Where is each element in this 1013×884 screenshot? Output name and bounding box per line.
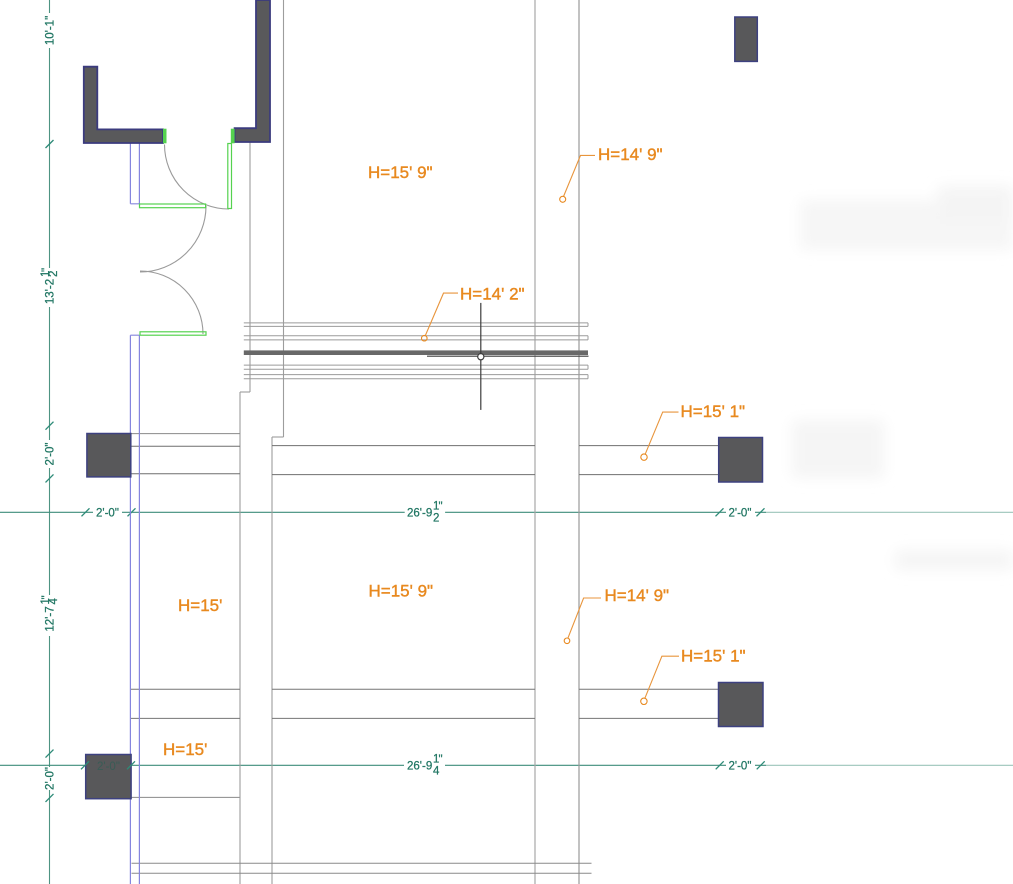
svg-text:": " <box>439 501 443 513</box>
svg-text:4: 4 <box>433 766 440 778</box>
svg-text:2'-0": 2'-0" <box>45 767 57 790</box>
svg-text:2'-0": 2'-0" <box>729 508 752 520</box>
svg-text:2'-0": 2'-0" <box>45 443 57 466</box>
svg-text:13'-2: 13'-2 <box>45 279 57 304</box>
svg-text:": " <box>439 754 443 766</box>
svg-text:2'-0": 2'-0" <box>97 761 120 773</box>
svg-text:H=15' 1": H=15' 1" <box>681 646 746 665</box>
svg-text:2'-0": 2'-0" <box>96 508 119 520</box>
svg-text:2'-0": 2'-0" <box>729 761 752 773</box>
svg-text:": " <box>41 595 53 599</box>
svg-text:10'-1": 10'-1" <box>45 16 57 45</box>
svg-text:H=15' 1": H=15' 1" <box>681 402 746 421</box>
svg-text:26'-9: 26'-9 <box>407 761 432 773</box>
svg-text:12'-7: 12'-7 <box>45 606 57 631</box>
svg-text:2: 2 <box>433 513 439 525</box>
svg-text:26'-9: 26'-9 <box>407 508 432 520</box>
svg-text:": " <box>41 268 53 272</box>
svg-text:H=14' 2": H=14' 2" <box>460 285 525 304</box>
svg-text:H=15': H=15' <box>163 740 207 759</box>
svg-text:H=15': H=15' <box>178 596 222 615</box>
svg-text:H=15' 9": H=15' 9" <box>368 163 433 182</box>
svg-text:H=14' 9": H=14' 9" <box>598 145 663 164</box>
svg-text:H=14' 9": H=14' 9" <box>605 586 670 605</box>
svg-text:H=15' 9": H=15' 9" <box>369 582 434 601</box>
